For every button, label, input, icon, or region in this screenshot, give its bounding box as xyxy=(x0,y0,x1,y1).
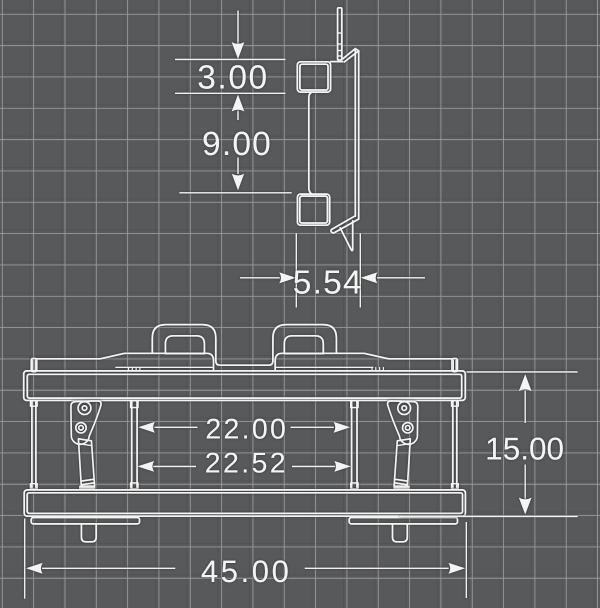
svg-text:5.54: 5.54 xyxy=(293,265,363,302)
svg-text:15.00: 15.00 xyxy=(485,430,564,466)
svg-text:45.00: 45.00 xyxy=(201,554,292,589)
svg-text:22.52: 22.52 xyxy=(205,448,288,480)
svg-text:9.00: 9.00 xyxy=(202,126,272,163)
svg-text:3.00: 3.00 xyxy=(197,60,269,97)
svg-text:22.00: 22.00 xyxy=(205,414,288,446)
